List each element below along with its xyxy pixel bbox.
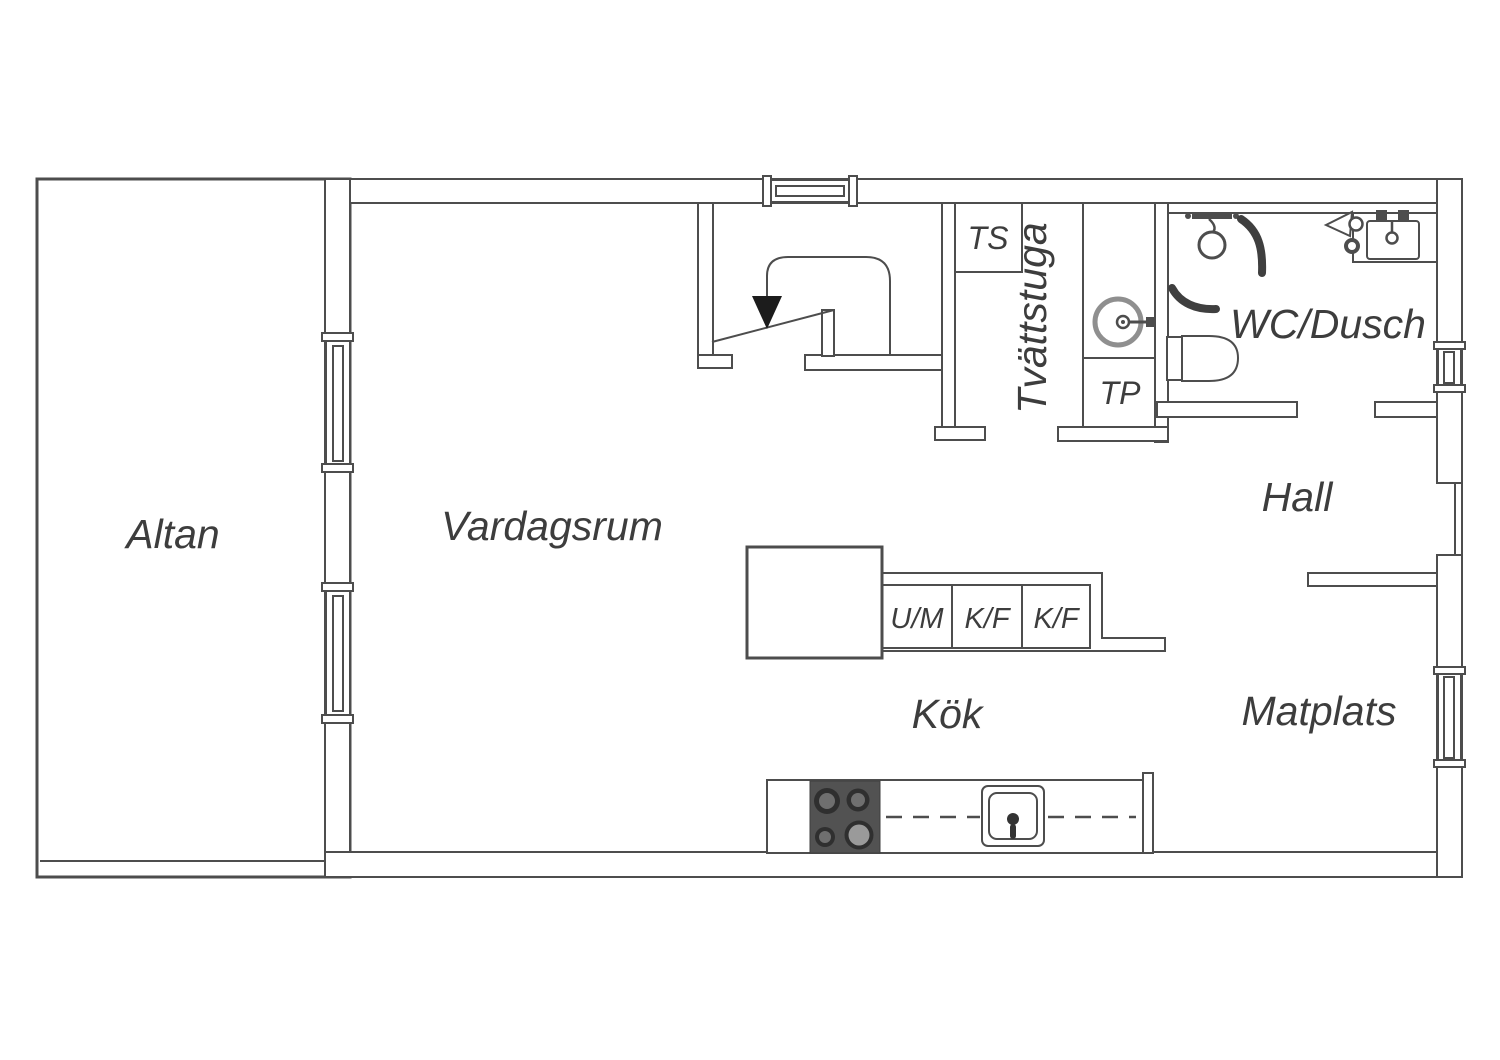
label-um: U/M: [890, 603, 944, 635]
label-kok: Kök: [912, 691, 985, 737]
shower-head-icon: [1199, 232, 1225, 258]
kitchen-island: [747, 547, 882, 658]
window-top: [763, 176, 857, 206]
toilet-tank: [1167, 337, 1182, 380]
stair-newel-stub: [822, 310, 834, 356]
wall-bottom: [325, 852, 1462, 877]
window-left-2: [322, 583, 353, 723]
label-altan: Altan: [123, 511, 219, 557]
floor-plan: Altan Vardagsrum Kök Matplats Hall WC/Du…: [0, 0, 1500, 1060]
laundry-bottom-wall: [1058, 427, 1168, 441]
kitchen-sink: [982, 786, 1044, 846]
label-tvattstuga: Tvättstuga: [1009, 222, 1055, 413]
label-matplats: Matplats: [1242, 688, 1397, 734]
window-left-1: [322, 333, 353, 472]
floor-plan-drawing: Altan Vardagsrum Kök Matplats Hall WC/Du…: [0, 0, 1500, 1060]
label-hall: Hall: [1262, 474, 1335, 520]
label-tp: TP: [1100, 375, 1142, 411]
label-wc-dusch: WC/Dusch: [1230, 301, 1426, 347]
wall-right-upper: [1437, 179, 1462, 483]
wall-right-thin-section: [1455, 483, 1462, 555]
stove-cooktop: [810, 781, 880, 853]
stair-wall-right-foot: [935, 427, 985, 440]
wc-bottom-wall-left: [1157, 402, 1297, 417]
hall-divider-wall: [1308, 573, 1437, 586]
stair-wall-left-foot: [698, 355, 732, 368]
stair-wall-left: [698, 203, 713, 355]
counter-end-pillar: [1143, 773, 1153, 853]
stair-wall-right: [942, 203, 955, 427]
shower-rail: [1192, 212, 1232, 219]
wc-bottom-wall-right: [1375, 402, 1437, 417]
label-kf1: K/F: [964, 603, 1011, 635]
toilet: [1167, 336, 1238, 381]
wall-top: [325, 179, 1462, 203]
sink-faucet: [1010, 824, 1016, 839]
label-kf2: K/F: [1033, 603, 1080, 635]
wall-left: [325, 179, 350, 877]
window-right-wc: [1434, 342, 1465, 392]
window-right-matplats: [1434, 667, 1465, 767]
label-vardagsrum: Vardagsrum: [441, 503, 663, 549]
label-ts: TS: [968, 220, 1009, 256]
stair-wall-bottom: [805, 355, 955, 370]
